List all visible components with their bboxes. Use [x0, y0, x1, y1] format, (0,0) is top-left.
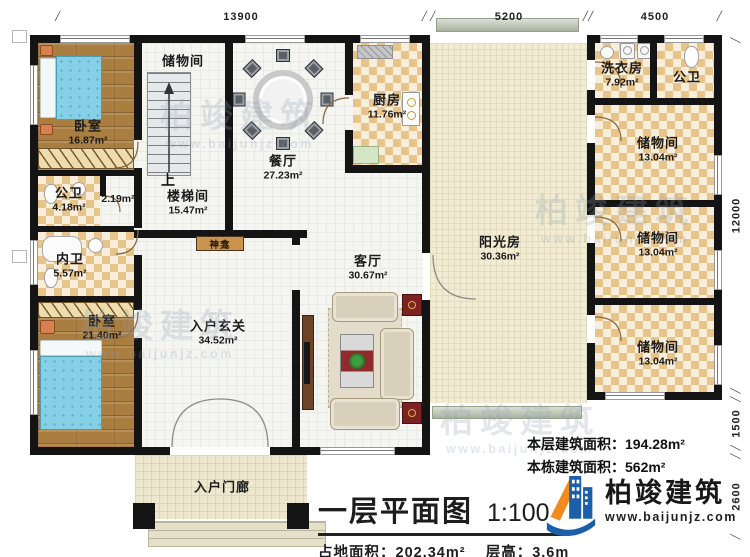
bed-icon [56, 56, 102, 120]
wall [30, 296, 134, 302]
room-name: 洗衣房 [601, 62, 643, 77]
dimension-top-5200: ╱ 5200 ╱ [430, 9, 588, 24]
wall [134, 168, 142, 228]
nightstand-icon [40, 320, 55, 334]
kitchen-cabinet-icon [353, 146, 379, 164]
window [245, 35, 305, 43]
chair-icon [276, 137, 290, 150]
room-name: 内卫 [53, 253, 86, 268]
room-name: 储物间 [637, 137, 679, 152]
shrine-label: 神龛 [196, 236, 244, 251]
room-label-storage3: 储物间 13.04m² [637, 341, 679, 368]
logo-blue-tower [569, 476, 581, 519]
room-area: 4.18m² [52, 201, 85, 213]
sunroom-floor [430, 43, 587, 403]
sink-icon [88, 238, 103, 253]
room-label-living: 客厅 30.67m² [348, 255, 387, 282]
dimension-label: 5200 [435, 11, 582, 23]
porch-column [133, 503, 155, 529]
dimension-tick: ╱ [422, 12, 427, 21]
room-label-bedroom-top: 卧室 16.87m² [68, 120, 107, 147]
wall [134, 255, 142, 310]
room-label-bedroom-bottom: 卧室 21.40m² [82, 315, 121, 342]
room-label-storage-top: 储物间 [162, 55, 204, 70]
wall [587, 298, 722, 305]
nightstand-icon [40, 124, 53, 135]
dimension-top-4500: ╱ 4500 ╱ [588, 9, 722, 24]
dimension-label: 13900 [60, 11, 421, 23]
room-label-laundry: 洗衣房 7.92m² [601, 62, 643, 89]
room-name: 储物间 [637, 232, 679, 247]
room-area: 27.23m² [263, 169, 302, 181]
scale-label: 1:100 [487, 499, 550, 528]
company-name: 柏竣建筑 [605, 480, 737, 507]
title-row: 一层平面图 1:100 [318, 488, 569, 536]
room-label-bath-right: 公卫 [673, 71, 701, 86]
window [60, 35, 130, 43]
room-label-porch: 入户门廊 [194, 481, 250, 496]
floor-height-label: 层高： [486, 545, 533, 557]
spacer [471, 545, 481, 557]
window [714, 345, 722, 385]
bed-icon [40, 356, 102, 430]
wall [587, 343, 595, 400]
room-area: 11.76m² [368, 108, 407, 120]
dimension-tick: ╱ [732, 445, 741, 450]
dimension-label: 12000 [730, 43, 742, 388]
sofa-icon [330, 398, 400, 430]
floor-area-value: 194.28m² [625, 436, 685, 452]
room-name: 餐厅 [263, 155, 302, 170]
window [714, 155, 722, 195]
dimension-tick: ╱ [732, 388, 741, 393]
dimension-tick: ╱ [717, 12, 722, 21]
wall [587, 35, 595, 60]
room-label-bath-left: 公卫 4.18m² [52, 187, 85, 214]
sink-icon [600, 46, 614, 59]
room-area: 7.92m² [601, 76, 643, 88]
wardrobe-top [38, 148, 134, 169]
porch-column [287, 503, 309, 529]
floor-plan-canvas: ╱ 13900 ╱ ╱ 5200 ╱ ╱ 4500 ╱ ╱ 12000 ╱ ╱ … [0, 0, 750, 557]
room-area: 30.67m² [348, 269, 387, 281]
side-table-icon [402, 402, 422, 424]
wall [345, 165, 430, 173]
room-label-dining: 餐厅 27.23m² [263, 155, 302, 182]
room-name: 楼梯间 [167, 190, 209, 205]
chair-icon [233, 93, 246, 107]
corner-marker [12, 250, 27, 263]
room-name: 储物间 [637, 341, 679, 356]
stairs-up-label: 上 [161, 170, 175, 190]
logo-swoosh [547, 519, 595, 536]
floor-area-stat: 本层建筑面积：194.28m² [527, 434, 685, 454]
room-name: 公卫 [52, 187, 85, 202]
logo-building-icon [545, 468, 597, 536]
room-area: 21.40m² [82, 329, 121, 341]
wall [345, 35, 353, 95]
window [30, 350, 38, 415]
title-subrow: 占地面积：202.34m² 层高：3.6m [318, 541, 569, 557]
room-area: 13.04m² [637, 355, 679, 367]
dimension-label: 4500 [593, 11, 716, 23]
window [30, 65, 38, 125]
room-label-kitchen: 厨房 11.76m² [368, 94, 407, 121]
room-name: 储物间 [162, 55, 204, 70]
room-label-sunroom: 阳光房 30.36m² [479, 236, 521, 263]
floor-height-value: 3.6m [532, 545, 569, 557]
window [320, 447, 395, 455]
dimension-tick: ╱ [732, 397, 741, 402]
room-area: 13.04m² [637, 151, 679, 163]
under-stair-area-label: 2.19m² [101, 193, 134, 205]
room-name: 卧室 [68, 120, 107, 135]
wall [587, 200, 722, 207]
company-logo: 柏竣建筑 www.baijunjz.com [545, 468, 737, 536]
room-area: 5.57m² [53, 267, 86, 279]
room-label-inner-bath: 内卫 5.57m² [53, 253, 86, 280]
room-area: 2.19m² [101, 193, 134, 205]
pillow-icon [40, 58, 56, 118]
wall [30, 447, 170, 455]
room-area: 13.04m² [637, 246, 679, 258]
plant-icon [349, 353, 365, 369]
room-name: 客厅 [348, 255, 387, 270]
wall [587, 98, 722, 105]
window [600, 35, 638, 43]
page-title: 一层平面图 [318, 488, 473, 530]
room-area: 30.36m² [479, 250, 521, 262]
room-name: 入户门廊 [194, 481, 250, 496]
corner-marker [12, 30, 27, 43]
dimension-top-13900: ╱ 13900 ╱ [55, 9, 427, 24]
wall [134, 338, 142, 447]
wall [422, 300, 430, 455]
chair-icon [276, 49, 290, 62]
title-block: 一层平面图 1:100 占地面积：202.34m² 层高：3.6m [318, 488, 569, 557]
dimension-tick: ╱ [732, 454, 741, 459]
footprint-value: 202.34m² [396, 545, 466, 557]
floor-area-label: 本层建筑面积： [527, 436, 625, 452]
wall [134, 35, 142, 140]
window [605, 392, 665, 400]
chair-icon [321, 93, 334, 107]
window [714, 250, 722, 290]
side-table-icon [402, 294, 422, 316]
room-label-storage2: 储物间 13.04m² [637, 232, 679, 259]
nightstand-icon [40, 45, 53, 56]
dimension-right-1500: ╱ 1500 ╱ [729, 397, 744, 451]
dimension-tick: ╱ [732, 38, 741, 43]
pillow-icon [40, 340, 102, 356]
burner-icon [407, 98, 416, 107]
wall [30, 170, 134, 176]
footprint-label: 占地面积： [318, 545, 396, 557]
room-label-foyer: 入户玄关 34.52m² [190, 320, 246, 347]
room-name: 阳光房 [479, 236, 521, 251]
company-url: www.baijunjz.com [605, 510, 737, 524]
company-text: 柏竣建筑 www.baijunjz.com [605, 480, 737, 524]
room-name: 卧室 [82, 315, 121, 330]
room-name: 厨房 [368, 94, 407, 109]
tv-icon [304, 342, 310, 384]
burner-icon [407, 111, 416, 120]
room-area: 16.87m² [68, 134, 107, 146]
dining-table-icon [253, 70, 313, 130]
toilet-icon [684, 46, 699, 68]
window [664, 35, 704, 43]
wall [422, 35, 430, 253]
room-area: 15.47m² [167, 204, 209, 216]
washer-icon [620, 43, 635, 59]
stairs-icon [147, 72, 191, 176]
coffee-table-icon [340, 334, 374, 388]
sofa-icon [332, 292, 398, 322]
room-name: 入户玄关 [190, 320, 246, 335]
room-label-storage1: 储物间 13.04m² [637, 137, 679, 164]
room-label-stair-hall: 楼梯间 15.47m² [167, 190, 209, 217]
eave-strip-bottom [432, 406, 582, 419]
wall [650, 35, 657, 98]
room-name: 公卫 [673, 71, 701, 86]
room-area: 34.52m² [190, 334, 246, 346]
sofa-icon [380, 328, 414, 400]
wall [292, 290, 300, 447]
dimension-label: 1500 [730, 402, 742, 445]
dimension-right-12000: ╱ 12000 ╱ [729, 38, 744, 394]
window [30, 240, 38, 285]
wall [30, 226, 134, 232]
range-hood-icon [357, 45, 393, 59]
window [360, 35, 410, 43]
wall [225, 35, 233, 230]
